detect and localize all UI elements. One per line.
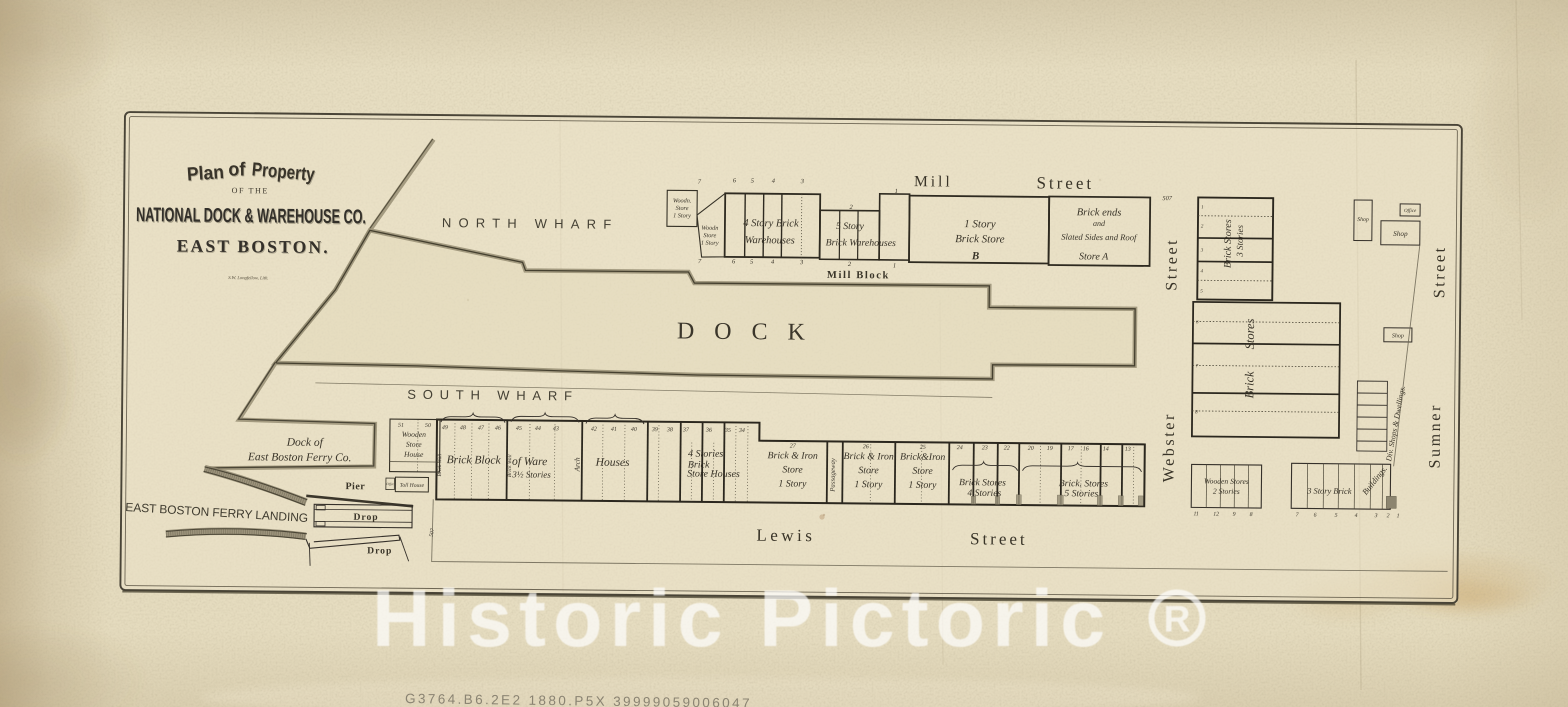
svg-text:1 Story: 1 Story [701, 240, 719, 247]
svg-text:Historic Pictoric: Historic Pictoric [372, 574, 1112, 664]
svg-text:507: 507 [1162, 195, 1172, 202]
svg-text:Brick Warehouses: Brick Warehouses [826, 237, 897, 249]
svg-text:47: 47 [478, 424, 485, 431]
svg-text:35: 35 [724, 428, 731, 434]
svg-text:Woodn: Woodn [701, 225, 718, 232]
svg-text:3 Stories: 3 Stories [1235, 224, 1245, 257]
svg-text:27: 27 [790, 443, 797, 449]
svg-text:42: 42 [591, 426, 597, 433]
svg-text:NORTH WHARF: NORTH WHARF [442, 215, 619, 232]
svg-text:23: 23 [982, 445, 988, 451]
svg-text:Passageway: Passageway [830, 457, 837, 493]
svg-text:Mill: Mill [914, 173, 953, 190]
svg-text:4 Story Brick: 4 Story Brick [743, 218, 799, 230]
svg-text:36: 36 [705, 428, 712, 434]
svg-text:19: 19 [1047, 446, 1053, 452]
svg-text:5 Stories: 5 Stories [1064, 488, 1098, 499]
svg-text:Drop: Drop [353, 512, 378, 523]
svg-text:Store: Store [406, 440, 422, 449]
svg-text:Brick Block: Brick Block [447, 454, 502, 467]
svg-text:44: 44 [535, 425, 541, 432]
svg-text:R: R [1164, 599, 1191, 640]
svg-text:14: 14 [1103, 446, 1109, 453]
svg-text:Woodn.: Woodn. [673, 197, 692, 204]
svg-text:9: 9 [1233, 512, 1236, 518]
svg-text:Dock of: Dock of [286, 437, 325, 449]
svg-text:48: 48 [460, 424, 466, 431]
svg-text:Brick: Brick [1242, 371, 1256, 399]
svg-text:5: 5 [1335, 513, 1338, 519]
svg-text:22: 22 [1004, 446, 1010, 452]
svg-text:Brick & Iron: Brick & Iron [844, 451, 894, 462]
svg-text:Store: Store [782, 464, 803, 475]
svg-text:20: 20 [1028, 446, 1034, 452]
svg-text:Brick & Iron: Brick & Iron [768, 450, 818, 461]
svg-text:Houses: Houses [595, 457, 630, 469]
svg-text:Brick Stores: Brick Stores [1223, 219, 1234, 268]
svg-text:House: House [403, 450, 424, 459]
svg-text:4 Stories: 4 Stories [688, 448, 723, 459]
svg-text:Brick Wall: Brick Wall [507, 454, 513, 477]
svg-text:24: 24 [957, 444, 963, 451]
svg-text:Street: Street [1431, 245, 1449, 298]
svg-text:3½ Stories: 3½ Stories [511, 469, 551, 479]
svg-text:Brick&Iron: Brick&Iron [900, 452, 946, 463]
svg-text:Warehouses: Warehouses [745, 235, 795, 246]
svg-text:Store: Store [703, 232, 716, 239]
svg-text:Sumner: Sumner [1427, 403, 1445, 469]
svg-text:Shop: Shop [1393, 230, 1408, 238]
svg-text:East Boston Ferry Co.: East Boston Ferry Co. [247, 451, 352, 464]
svg-text:Brick Stores: Brick Stores [959, 477, 1006, 488]
svg-text:Lewis: Lewis [756, 526, 815, 546]
svg-text:1 Story: 1 Story [964, 218, 996, 230]
svg-text:41: 41 [611, 426, 617, 433]
svg-text:Drop: Drop [367, 545, 392, 556]
svg-text:Arch: Arch [573, 457, 582, 472]
svg-text:3: 3 [1374, 513, 1378, 519]
svg-text:50: 50 [425, 423, 431, 429]
svg-text:39: 39 [651, 427, 658, 433]
svg-text:Slated Sides and Roof: Slated Sides and Roof [1061, 232, 1138, 243]
svg-text:SOUTH WHARF: SOUTH WHARF [407, 387, 579, 404]
svg-text:12: 12 [1213, 512, 1219, 518]
svg-text:Street: Street [1163, 238, 1181, 291]
svg-text:26: 26 [863, 444, 869, 450]
svg-text:3 Story Brick: 3 Story Brick [1306, 487, 1352, 496]
svg-text:1 Story: 1 Story [778, 478, 807, 489]
svg-text:Wooden Stores: Wooden Stores [1204, 477, 1249, 486]
svg-text:1 Story: 1 Story [854, 479, 883, 490]
svg-text:and: and [1093, 219, 1106, 228]
svg-text:4: 4 [1355, 512, 1358, 519]
svg-text:1: 1 [893, 262, 896, 269]
svg-text:Street: Street [1036, 173, 1094, 193]
svg-text:Store: Store [912, 466, 933, 477]
svg-text:17: 17 [1068, 446, 1075, 452]
svg-text:5: 5 [751, 178, 754, 185]
svg-text:Shop: Shop [1357, 217, 1369, 223]
svg-text:Stores: Stores [1243, 318, 1257, 349]
svg-text:1: 1 [1201, 205, 1204, 210]
svg-text:1 Story: 1 Story [673, 212, 691, 219]
svg-text:1 Story: 1 Story [908, 480, 937, 491]
svg-text:of Ware: of Ware [512, 456, 547, 468]
svg-text:NATIONAL DOCK & WAREHOUSE CO.: NATIONAL DOCK & WAREHOUSE CO. [136, 204, 366, 228]
svg-text:5: 5 [750, 259, 753, 266]
svg-text:37: 37 [682, 427, 690, 433]
svg-text:Brick Store: Brick Store [955, 233, 1005, 245]
svg-text:Store: Store [676, 205, 689, 212]
svg-text:Mill Block: Mill Block [827, 270, 890, 282]
svg-text:38: 38 [666, 427, 673, 433]
svg-text:45: 45 [516, 425, 522, 432]
svg-text:49: 49 [442, 424, 448, 431]
svg-text:3: 3 [799, 259, 803, 266]
svg-text:2: 2 [1387, 513, 1390, 519]
svg-text:16: 16 [1083, 446, 1089, 452]
svg-text:43: 43 [553, 425, 559, 432]
svg-text:Toll House: Toll House [400, 483, 425, 489]
svg-text:13: 13 [1125, 447, 1131, 453]
svg-text:Office: Office [1404, 209, 1417, 214]
svg-text:34: 34 [738, 427, 745, 434]
svg-text:Plan: Plan [186, 162, 224, 185]
svg-text:DOCK: DOCK [677, 318, 825, 345]
svg-text:46: 46 [495, 425, 501, 432]
svg-text:2 Stories: 2 Stories [1213, 487, 1240, 496]
svg-text:Street: Street [970, 529, 1028, 549]
svg-text:Wooden: Wooden [402, 430, 426, 439]
svg-text:1: 1 [1397, 513, 1400, 519]
svg-text:3: 3 [800, 178, 804, 185]
svg-text:EAST BOSTON.: EAST BOSTON. [177, 236, 333, 258]
svg-text:Offce: Offce [386, 482, 394, 486]
svg-text:25: 25 [920, 445, 926, 451]
svg-text:11: 11 [1193, 511, 1199, 517]
svg-text:of: of [228, 159, 246, 180]
svg-text:Store Houses: Store Houses [687, 468, 740, 480]
svg-text:8: 8 [1250, 512, 1253, 518]
svg-text:Pier: Pier [345, 481, 365, 492]
svg-text:Shop: Shop [1392, 333, 1404, 339]
svg-text:B: B [971, 250, 979, 262]
svg-text:40: 40 [631, 426, 637, 433]
svg-text:Brick ends: Brick ends [1077, 207, 1122, 218]
svg-text:Store A: Store A [1079, 251, 1109, 262]
svg-text:1: 1 [895, 188, 898, 195]
svg-text:5 Story: 5 Story [836, 221, 865, 232]
svg-text:OF THE: OF THE [232, 186, 269, 195]
svg-text:6: 6 [1314, 513, 1317, 519]
svg-text:51: 51 [398, 423, 404, 429]
svg-text:Store: Store [858, 465, 879, 476]
svg-text:Webster: Webster [1160, 412, 1178, 482]
